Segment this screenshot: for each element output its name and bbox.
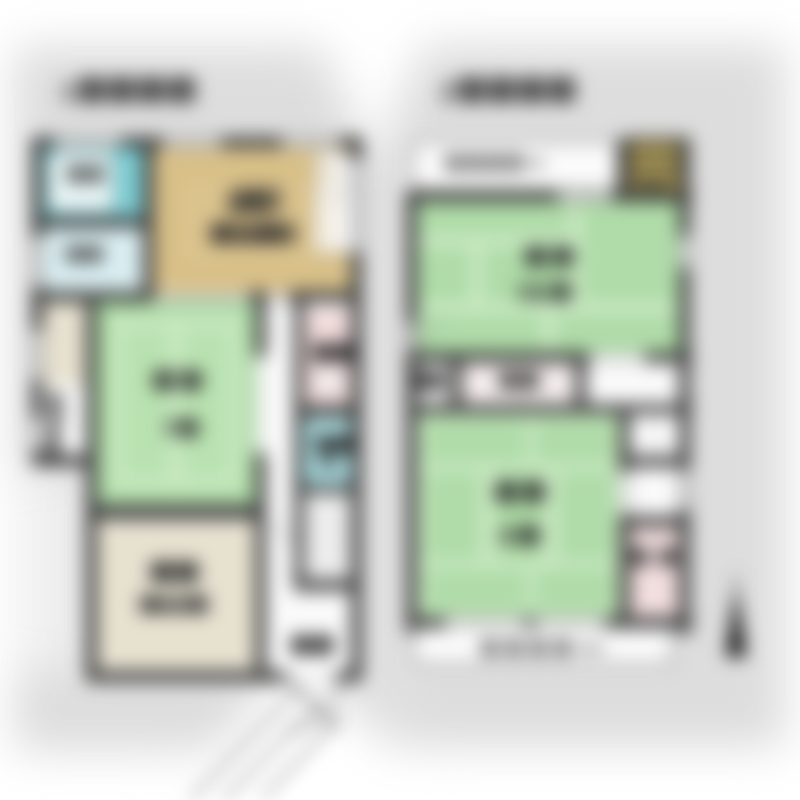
svg-text:6: 6	[501, 526, 512, 548]
svg-text:7.5: 7.5	[518, 283, 545, 304]
svg-text:1: 1	[60, 77, 75, 107]
svg-text:7: 7	[166, 419, 177, 440]
svg-text:2: 2	[440, 77, 455, 107]
svg-text:4.5: 4.5	[160, 596, 187, 617]
svg-text:DK: DK	[228, 187, 272, 220]
svg-text:10: 10	[233, 223, 257, 248]
